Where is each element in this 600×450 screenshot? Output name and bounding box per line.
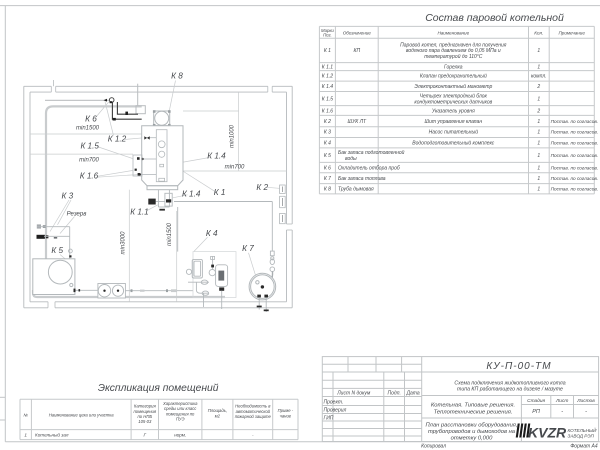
svg-text:Проверил: Проверил xyxy=(324,408,347,414)
svg-text:Теплотехнические решения.: Теплотехнические решения. xyxy=(434,409,513,415)
svg-text:Обозначение: Обозначение xyxy=(343,30,372,35)
svg-text:Электроконтактный манометр: Электроконтактный манометр xyxy=(414,83,492,90)
svg-text:КП: КП xyxy=(354,48,361,54)
svg-text:К 1: К 1 xyxy=(324,48,331,54)
svg-text:К 1.6: К 1.6 xyxy=(322,108,334,114)
svg-text:Листов: Листов xyxy=(576,398,595,404)
svg-text:К 4: К 4 xyxy=(324,140,331,146)
svg-text:1: 1 xyxy=(537,153,540,159)
svg-text:К 7: К 7 xyxy=(324,176,331,182)
svg-text:Постав. по согласов.: Постав. по согласов. xyxy=(551,119,599,124)
svg-text:Копировал: Копировал xyxy=(421,444,446,450)
svg-text:КУ-П-00-ТМ: КУ-П-00-ТМ xyxy=(486,361,551,372)
svg-text:min700: min700 xyxy=(79,157,99,163)
svg-text:типа КП работающего на дизеле: типа КП работающего на дизеле / мазуте xyxy=(457,386,563,392)
svg-text:КОТЕЛЬНЫЙ: КОТЕЛЬНЫЙ xyxy=(568,426,598,433)
svg-text:Труба дымовая: Труба дымовая xyxy=(338,187,374,193)
svg-text:Наименование цеха или участка: Наименование цеха или участка xyxy=(49,412,114,417)
svg-text:К 8: К 8 xyxy=(324,187,331,193)
svg-text:Указатель уровня: Указатель уровня xyxy=(432,108,475,114)
svg-text:К 1.1: К 1.1 xyxy=(130,207,148,216)
svg-text:Стадия: Стадия xyxy=(527,398,545,404)
svg-text:РП: РП xyxy=(532,409,540,415)
svg-text:ШУК ЛТ: ШУК ЛТ xyxy=(347,119,367,125)
svg-text:-: - xyxy=(561,409,563,415)
svg-text:Шит управления клапан: Шит управления клапан xyxy=(425,119,483,125)
svg-text:1: 1 xyxy=(537,140,540,146)
svg-text:Охладитель отбора проб: Охладитель отбора проб xyxy=(338,165,400,171)
svg-text:Постав. по согласов.: Постав. по согласов. xyxy=(551,153,599,158)
svg-text:Дата: Дата xyxy=(405,391,419,397)
svg-text:1: 1 xyxy=(537,187,540,193)
svg-text:min1000: min1000 xyxy=(229,124,235,148)
svg-text:min700: min700 xyxy=(225,165,245,171)
svg-text:К 1.2: К 1.2 xyxy=(322,74,334,80)
svg-text:К 7: К 7 xyxy=(242,244,254,253)
svg-text:Резерв: Резерв xyxy=(67,211,87,217)
svg-text:К 6: К 6 xyxy=(85,115,97,124)
svg-text:К 1.6: К 1.6 xyxy=(80,171,99,180)
svg-text:Состав паровой котельной: Состав паровой котельной xyxy=(425,12,564,24)
svg-text:ПУЭ: ПУЭ xyxy=(176,417,185,422)
svg-text:К 3: К 3 xyxy=(61,192,73,201)
svg-text:К 2: К 2 xyxy=(256,183,268,192)
svg-text:компл.: компл. xyxy=(531,74,547,80)
svg-text:1: 1 xyxy=(537,96,540,102)
svg-text:К 4: К 4 xyxy=(206,229,218,238)
svg-text:К 8: К 8 xyxy=(171,71,183,80)
svg-text:Бак запаса топлива: Бак запаса топлива xyxy=(338,176,386,182)
svg-text:норм.: норм. xyxy=(174,432,186,437)
svg-text:воды: воды xyxy=(345,156,357,162)
svg-text:К 5: К 5 xyxy=(51,246,63,255)
svg-text:Формат А4: Формат А4 xyxy=(570,444,598,450)
svg-text:К 1.4: К 1.4 xyxy=(182,190,201,199)
svg-text:Водоподготовительный комплекс: Водоподготовительный комплекс xyxy=(412,139,494,146)
svg-text:1: 1 xyxy=(24,432,27,437)
svg-text:трубопроводов и дымоходов на: трубопроводов и дымоходов на xyxy=(428,429,516,435)
svg-text:Лист N докум: Лист N докум xyxy=(336,391,371,397)
svg-text:1: 1 xyxy=(537,130,540,136)
svg-text:1: 1 xyxy=(537,165,540,171)
svg-text:min1500: min1500 xyxy=(167,222,173,246)
svg-text:Площадь,: Площадь, xyxy=(208,408,227,413)
svg-text:чание: чание xyxy=(280,413,292,418)
svg-text:К 1.1: К 1.1 xyxy=(322,64,334,70)
svg-text:К 6: К 6 xyxy=(324,165,331,171)
svg-text:К 1.5: К 1.5 xyxy=(322,96,334,102)
svg-text:м2: м2 xyxy=(215,413,221,418)
svg-text:Постав. по согласов.: Постав. по согласов. xyxy=(551,140,599,145)
svg-text:К 1.4: К 1.4 xyxy=(322,84,334,90)
svg-text:Постав. по согласов.: Постав. по согласов. xyxy=(551,130,599,135)
svg-text:KVZR: KVZR xyxy=(528,425,567,441)
svg-text:Постав. по согласов.: Постав. по согласов. xyxy=(551,187,599,192)
svg-text:ГИП: ГИП xyxy=(324,415,334,421)
svg-text:К 1: К 1 xyxy=(214,188,226,197)
svg-text:К 1.5: К 1.5 xyxy=(80,141,99,150)
svg-text:Насос питательный: Насос питательный xyxy=(429,129,479,136)
svg-text:Наименование: Наименование xyxy=(437,30,469,35)
svg-text:Постав. по согласов.: Постав. по согласов. xyxy=(551,176,599,181)
svg-text:1: 1 xyxy=(537,64,540,70)
svg-text:1: 1 xyxy=(537,119,540,125)
svg-text:Котельный зал: Котельный зал xyxy=(35,431,69,437)
svg-text:Горелка: Горелка xyxy=(444,64,463,70)
svg-text:План расстановки оборудования,: План расстановки оборудования, xyxy=(425,422,517,428)
svg-text:К 3: К 3 xyxy=(324,130,331,136)
svg-text:min3000: min3000 xyxy=(121,231,127,255)
svg-text:температурой до 110°С: температурой до 110°С xyxy=(424,53,483,60)
svg-text:К 2: К 2 xyxy=(324,119,331,125)
svg-text:2: 2 xyxy=(536,84,540,90)
svg-text:Экспликация помещений: Экспликация помещений xyxy=(98,383,219,394)
svg-text:2: 2 xyxy=(536,108,540,114)
svg-text:Проект.: Проект. xyxy=(324,400,344,406)
svg-text:К 5: К 5 xyxy=(324,153,331,159)
svg-text:Поз.: Поз. xyxy=(323,33,332,38)
svg-text:1: 1 xyxy=(537,48,540,54)
svg-text:Кол.: Кол. xyxy=(534,30,543,35)
svg-text:Примечание: Примечание xyxy=(558,30,585,35)
svg-text:К 1.2: К 1.2 xyxy=(108,135,127,144)
svg-text:-: - xyxy=(585,409,587,415)
svg-text:105-03: 105-03 xyxy=(138,419,152,424)
svg-text:пожарной защите: пожарной защите xyxy=(235,414,272,419)
svg-text:Котельная. Типовые решения.: Котельная. Типовые решения. xyxy=(431,402,515,408)
svg-text:К 1.4: К 1.4 xyxy=(207,151,226,160)
svg-text:Клапан предохранительный: Клапан предохранительный xyxy=(420,73,487,80)
svg-text:1: 1 xyxy=(537,176,540,182)
svg-text:отметку 0,000: отметку 0,000 xyxy=(451,436,493,442)
svg-text:№: № xyxy=(23,412,28,417)
svg-text:min1500: min1500 xyxy=(76,125,100,131)
svg-text:Подп.: Подп. xyxy=(388,391,401,397)
svg-text:Лист: Лист xyxy=(555,398,568,404)
svg-text:Приме -: Приме - xyxy=(278,408,294,413)
svg-text:кондуктометрических датчиков: кондуктометрических датчиков xyxy=(414,99,492,105)
svg-text:Постав. по согласов.: Постав. по согласов. xyxy=(551,165,599,170)
svg-text:ЗАВОД РЭП: ЗАВОД РЭП xyxy=(568,433,595,438)
